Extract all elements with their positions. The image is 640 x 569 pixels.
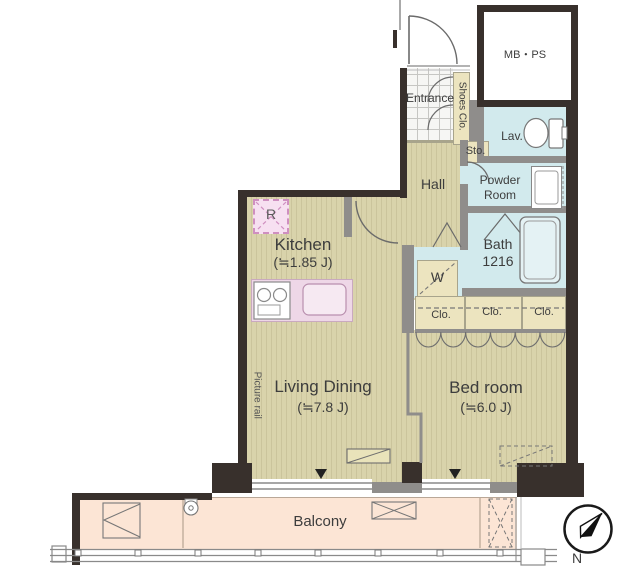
bath-line2: 1216 xyxy=(482,253,513,269)
wall-east xyxy=(566,100,578,497)
powder-line2: Room xyxy=(484,188,516,202)
closet-divider-2 xyxy=(521,296,523,333)
bath-label: Bath 1216 xyxy=(468,236,528,270)
kitchen-size: (≒1.85 J) xyxy=(250,255,356,270)
compass-n-label: N xyxy=(568,551,586,566)
wall-north-west-wing xyxy=(238,190,407,197)
entrance-label: Entrance xyxy=(404,92,456,105)
closet-2-label: Clo. xyxy=(474,307,510,319)
living-dining-label: Living Dining xyxy=(248,378,398,396)
compass-icon xyxy=(565,506,612,553)
closet-divider-1 xyxy=(464,296,466,333)
bedroom-label: Bed room xyxy=(421,379,551,397)
wall-lav-bottom xyxy=(483,156,566,163)
living-dining-size: (≒7.8 J) xyxy=(258,400,388,415)
entrance-door-arc xyxy=(409,16,457,64)
powder-room-label: Powder Room xyxy=(464,173,536,203)
closet-1-label: Clo. xyxy=(423,310,459,322)
wall-hall-west xyxy=(400,68,407,198)
floor-plan: MB・PS Entrance Shoes Clo. Sto. Lav. Powd… xyxy=(0,0,640,569)
closet-3-label: Clo. xyxy=(526,307,562,319)
wall-pier-dark xyxy=(402,462,422,483)
pier-center xyxy=(372,482,422,493)
wall-corner-sw xyxy=(212,463,252,493)
refrigerator-label: R xyxy=(253,207,289,222)
kitchen-counter xyxy=(251,279,353,322)
washer-label: W xyxy=(424,270,451,285)
wall-door-jamb xyxy=(344,197,352,237)
lavatory-label: Lav. xyxy=(490,130,534,143)
kitchen-label: Kitchen xyxy=(258,236,348,254)
railing-left-bracket xyxy=(52,546,66,562)
living-window xyxy=(252,479,372,493)
pier-right xyxy=(490,482,517,493)
outdoor-unit-box xyxy=(521,549,545,565)
mbps-label: MB・PS xyxy=(484,50,566,62)
wall-kitchen-east xyxy=(402,245,414,333)
hall-label: Hall xyxy=(415,177,451,192)
bedroom-size: (≒6.0 J) xyxy=(426,400,546,415)
picture-rail-label: Picture rail xyxy=(251,360,262,430)
powder-line1: Powder xyxy=(480,173,521,187)
bedroom-window xyxy=(422,479,490,493)
wall-bath-bottom xyxy=(462,288,566,296)
wall-balcony-top xyxy=(72,493,212,500)
wall-west xyxy=(238,190,247,465)
wall-balcony-left xyxy=(72,493,80,565)
balcony-label: Balcony xyxy=(278,514,362,530)
wall-door-stub xyxy=(393,30,397,48)
shoes-closet-label: Shoes Clo. xyxy=(456,76,467,136)
railing-posts xyxy=(75,550,503,556)
bath-line1: Bath xyxy=(484,236,513,252)
wall-closet-bottom xyxy=(415,329,566,333)
storage-label: Sto. xyxy=(462,146,489,158)
wall-entrance-right xyxy=(469,100,477,141)
